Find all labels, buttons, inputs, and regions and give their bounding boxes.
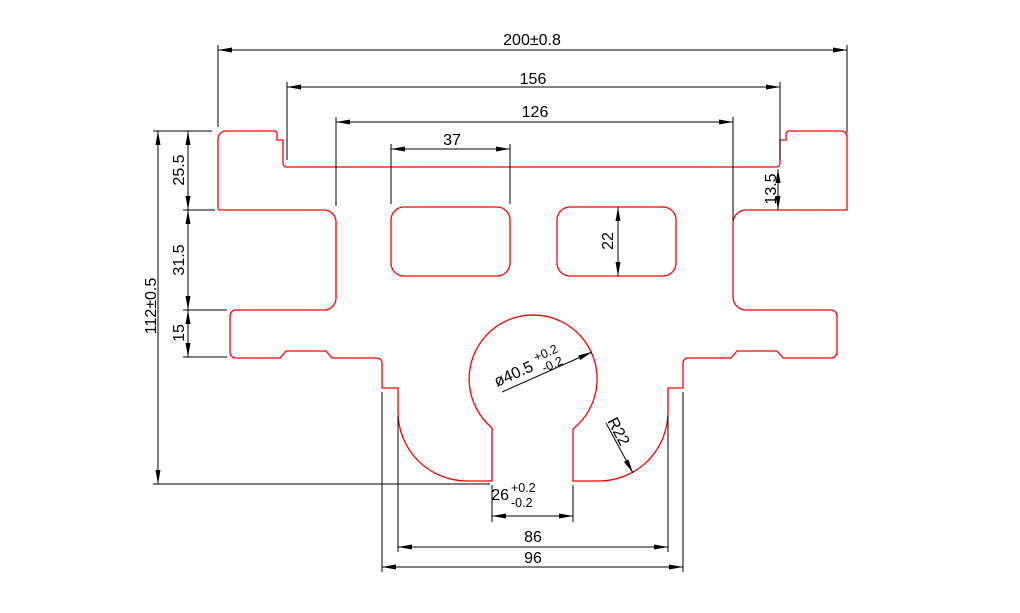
circle-dia-value: ø40.5 [492,358,536,390]
dim-slot-width-label: 26 +0.2 -0.2 [491,481,536,510]
dimension-labels: 200±0.8 156 126 37 112±0.5 25.5 31.5 15 … [143,32,780,567]
arrow-37-right [496,147,510,152]
arrow-22-top [616,207,621,221]
slot-width-tol-minus: -0.2 [511,496,533,510]
slot-width-tol-plus: +0.2 [511,481,536,495]
arrow-126-right [719,120,733,125]
arrow-96-right [669,565,683,570]
dim-hole-height-label: 22 [600,232,617,250]
dim-base-width-label: 96 [524,550,542,567]
arrow-86-left [398,545,412,550]
part-outline-group [218,131,847,481]
arrow-255-bottom [186,196,191,210]
dim-width-upper-label: 156 [520,71,547,88]
part-drawing-svg: 200±0.8 156 126 37 112±0.5 25.5 31.5 15 … [0,0,1020,613]
drawing-canvas: 200±0.8 156 126 37 112±0.5 25.5 31.5 15 … [0,0,1020,613]
arrow-112-top [156,131,161,145]
arrow-112-bottom [156,470,161,484]
arrow-315-top [186,210,191,224]
dim-width-total-label: 200±0.8 [503,32,561,49]
arrow-96-left [382,565,396,570]
arrow-156-left [287,85,301,90]
arrow-126-left [336,120,350,125]
part-outer-contour [218,131,847,481]
arrow-15-bottom [186,343,191,357]
arrow-26-left [492,514,506,519]
arrow-255-top [186,131,191,145]
dim-hole-width-label: 37 [443,132,461,149]
dim-circle-dia-label: ø40.5 +0.2 -0.2 [490,342,566,395]
arrow-22-bottom [616,262,621,276]
arrow-200-right [833,48,847,53]
arrow-26-right [559,514,573,519]
dim-slot-outer-label: 86 [524,529,542,546]
left-rect-hole [391,207,510,276]
arrow-156-right [766,85,780,90]
dim-height-tab-label: 15 [171,324,188,342]
arrow-315-bottom [186,296,191,310]
arrow-15-top [186,310,191,324]
dim-height-total-label: 112±0.5 [143,278,160,335]
arrow-37-left [391,147,405,152]
dim-height-upper-label: 25.5 [171,154,188,185]
slot-width-value: 26 [491,487,509,504]
dim-fillet-radius-label: R22 [603,415,632,449]
dim-step-right-label: 13.5 [763,173,780,204]
arrow-86-right [654,545,668,550]
arrow-200-left [218,48,232,53]
dim-width-waist-label: 126 [522,104,549,121]
dim-height-notch-label: 31.5 [171,244,188,275]
